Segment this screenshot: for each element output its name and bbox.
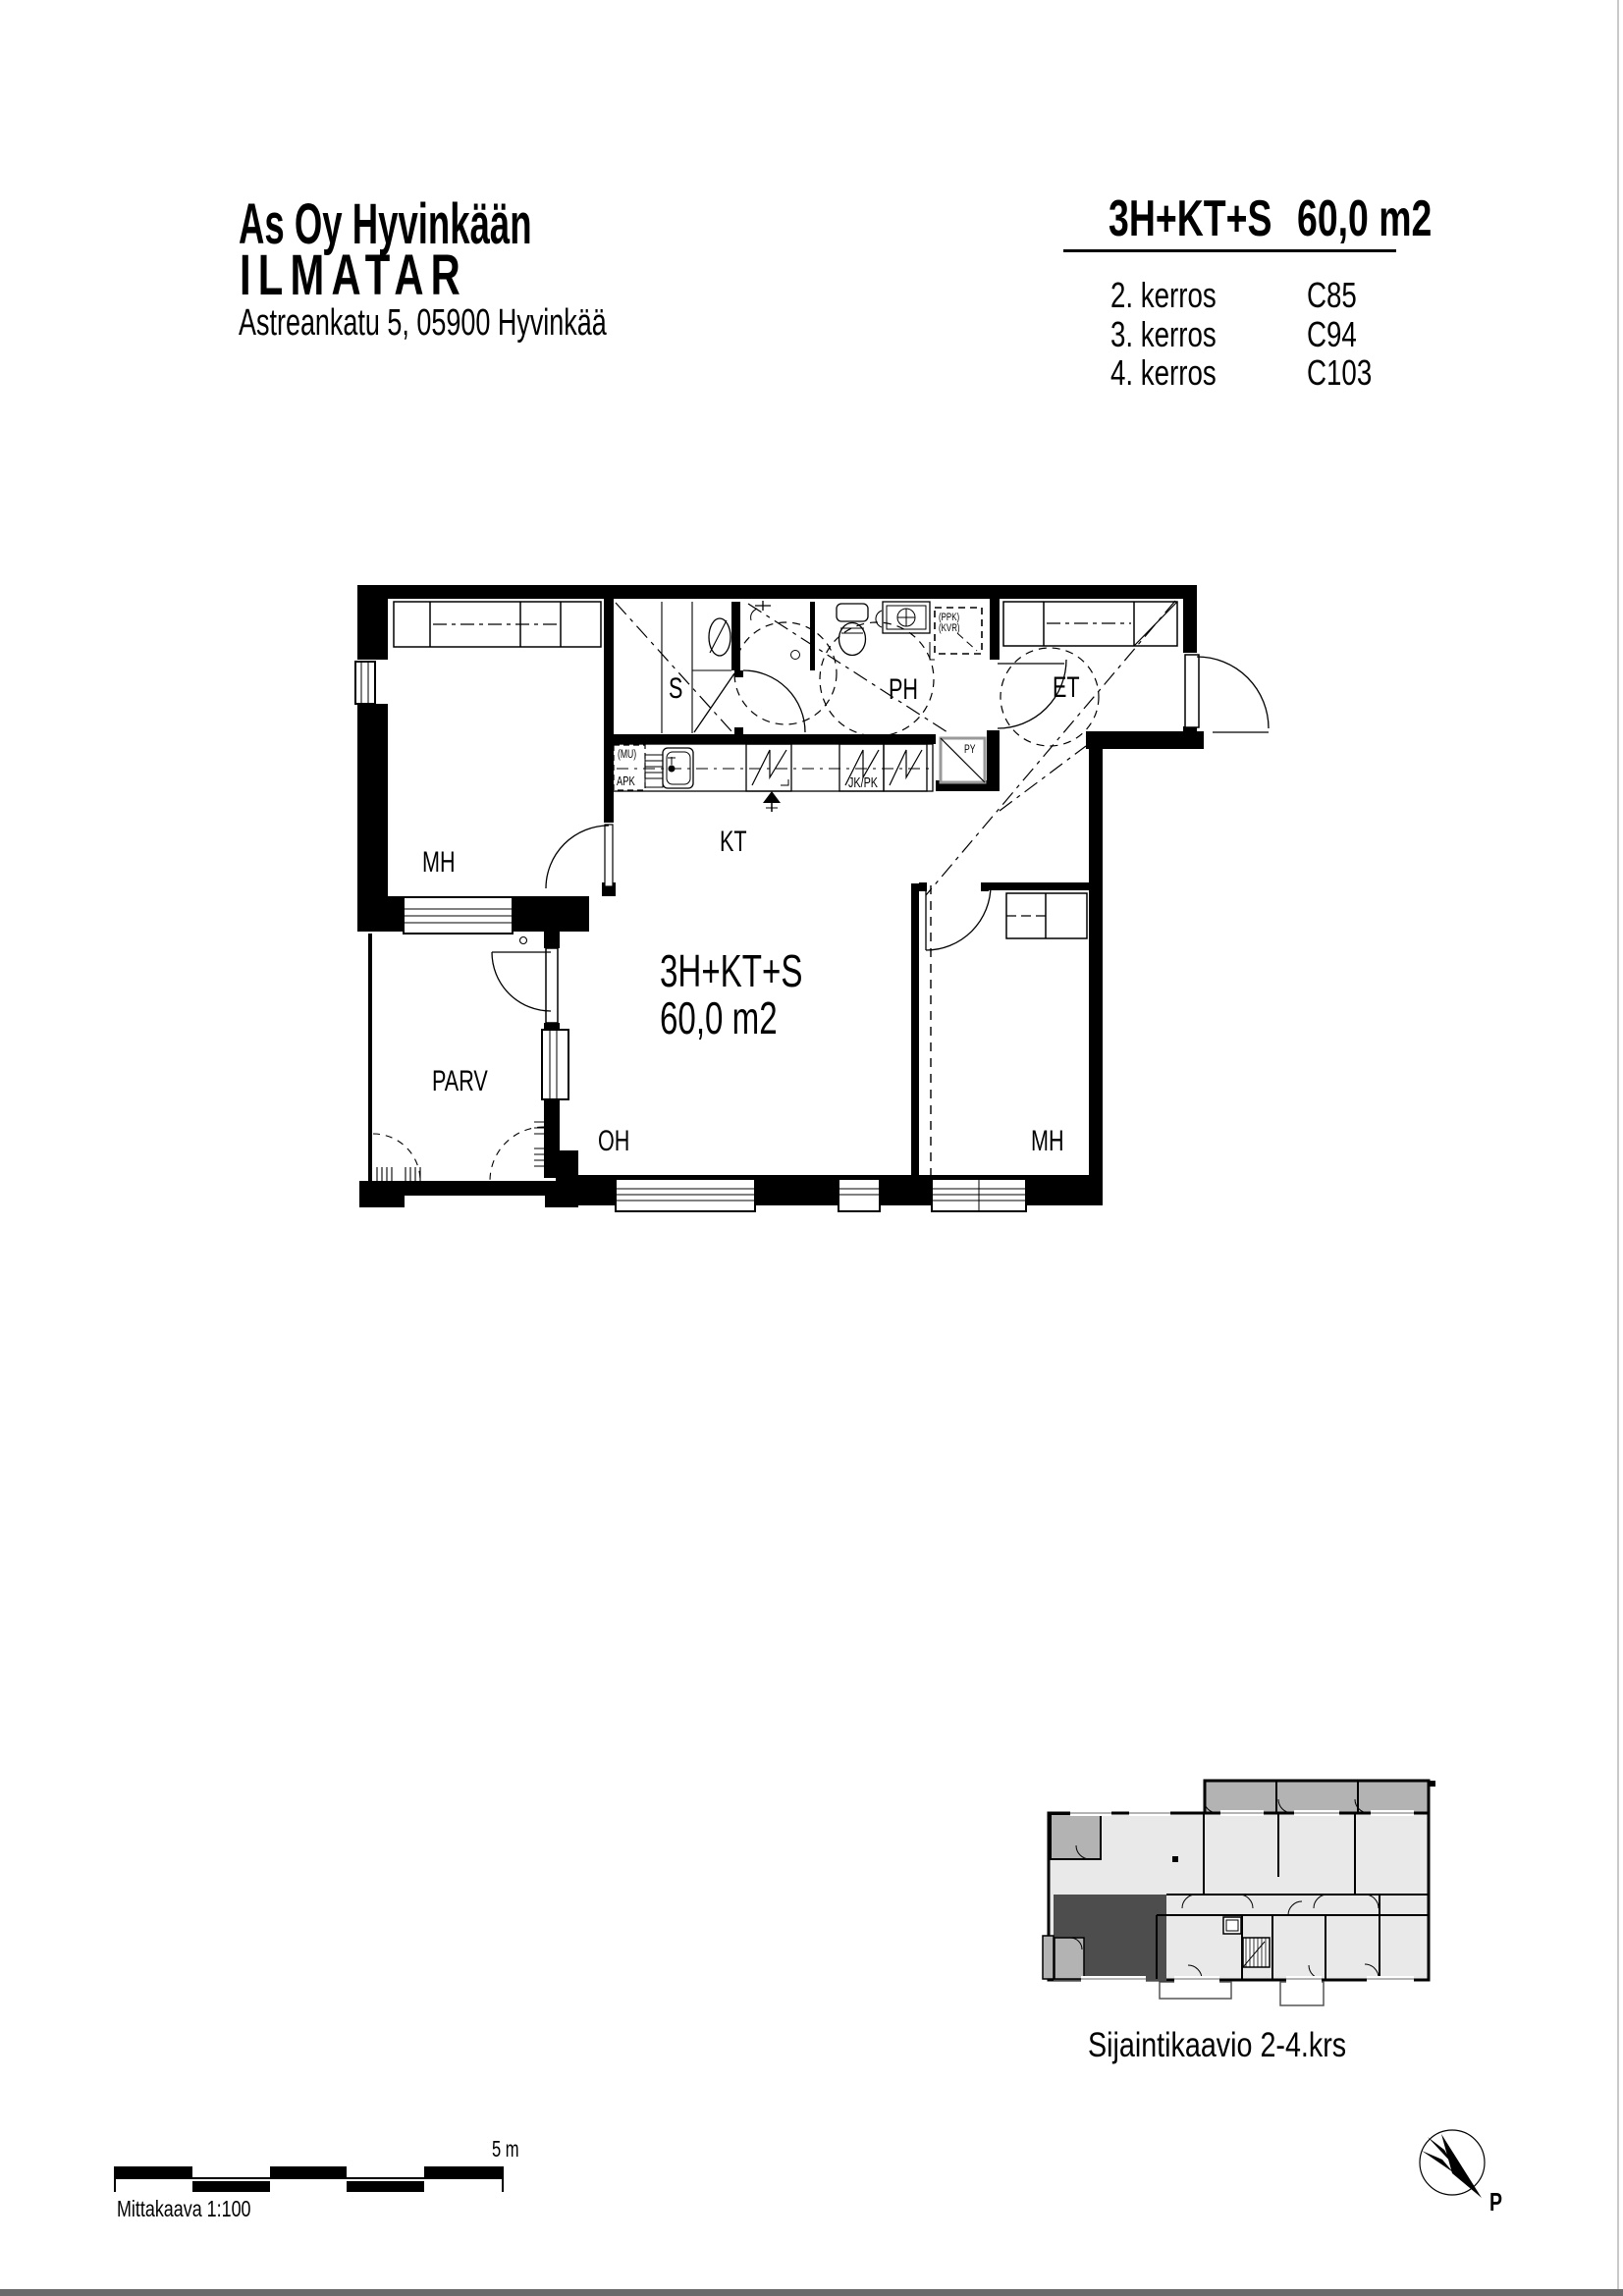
svg-text:S: S	[669, 670, 682, 704]
svg-text:ET: ET	[1053, 669, 1080, 703]
svg-text:(KVR): (KVR)	[939, 622, 960, 635]
svg-text:APK: APK	[617, 775, 635, 789]
svg-text:3H+KT+S: 3H+KT+S	[1109, 189, 1271, 247]
svg-text:60,0 m2: 60,0 m2	[660, 994, 778, 1043]
svg-text:C85: C85	[1307, 276, 1357, 315]
svg-text:(MU): (MU)	[618, 749, 636, 762]
svg-text:4. kerros: 4. kerros	[1110, 353, 1217, 393]
svg-text:JK/PK: JK/PK	[848, 774, 878, 790]
svg-text:Sijaintikaavio 2-4.krs: Sijaintikaavio 2-4.krs	[1088, 2025, 1346, 2063]
svg-text:60,0 m2: 60,0 m2	[1297, 189, 1432, 247]
svg-text:3H+KT+S: 3H+KT+S	[660, 947, 802, 996]
svg-text:MH: MH	[1031, 1123, 1064, 1156]
svg-text:PY: PY	[964, 744, 976, 757]
svg-text:C103: C103	[1307, 353, 1372, 393]
svg-text:KT: KT	[720, 824, 747, 857]
svg-text:PH: PH	[889, 671, 918, 705]
svg-text:2. kerros: 2. kerros	[1110, 276, 1217, 315]
svg-text:Mittakaava 1:100: Mittakaava 1:100	[117, 2197, 251, 2222]
svg-text:5 m: 5 m	[492, 2137, 519, 2162]
svg-text:C94: C94	[1307, 315, 1357, 354]
svg-text:P: P	[1489, 2187, 1502, 2216]
svg-text:3. kerros: 3. kerros	[1110, 315, 1217, 354]
svg-text:PARV: PARV	[432, 1063, 488, 1096]
svg-text:OH: OH	[598, 1123, 629, 1156]
svg-text:ILMATAR: ILMATAR	[240, 242, 467, 306]
svg-text:Astreankatu 5, 05900 Hyvinkää: Astreankatu 5, 05900 Hyvinkää	[239, 300, 607, 343]
svg-text:MH: MH	[422, 844, 456, 878]
